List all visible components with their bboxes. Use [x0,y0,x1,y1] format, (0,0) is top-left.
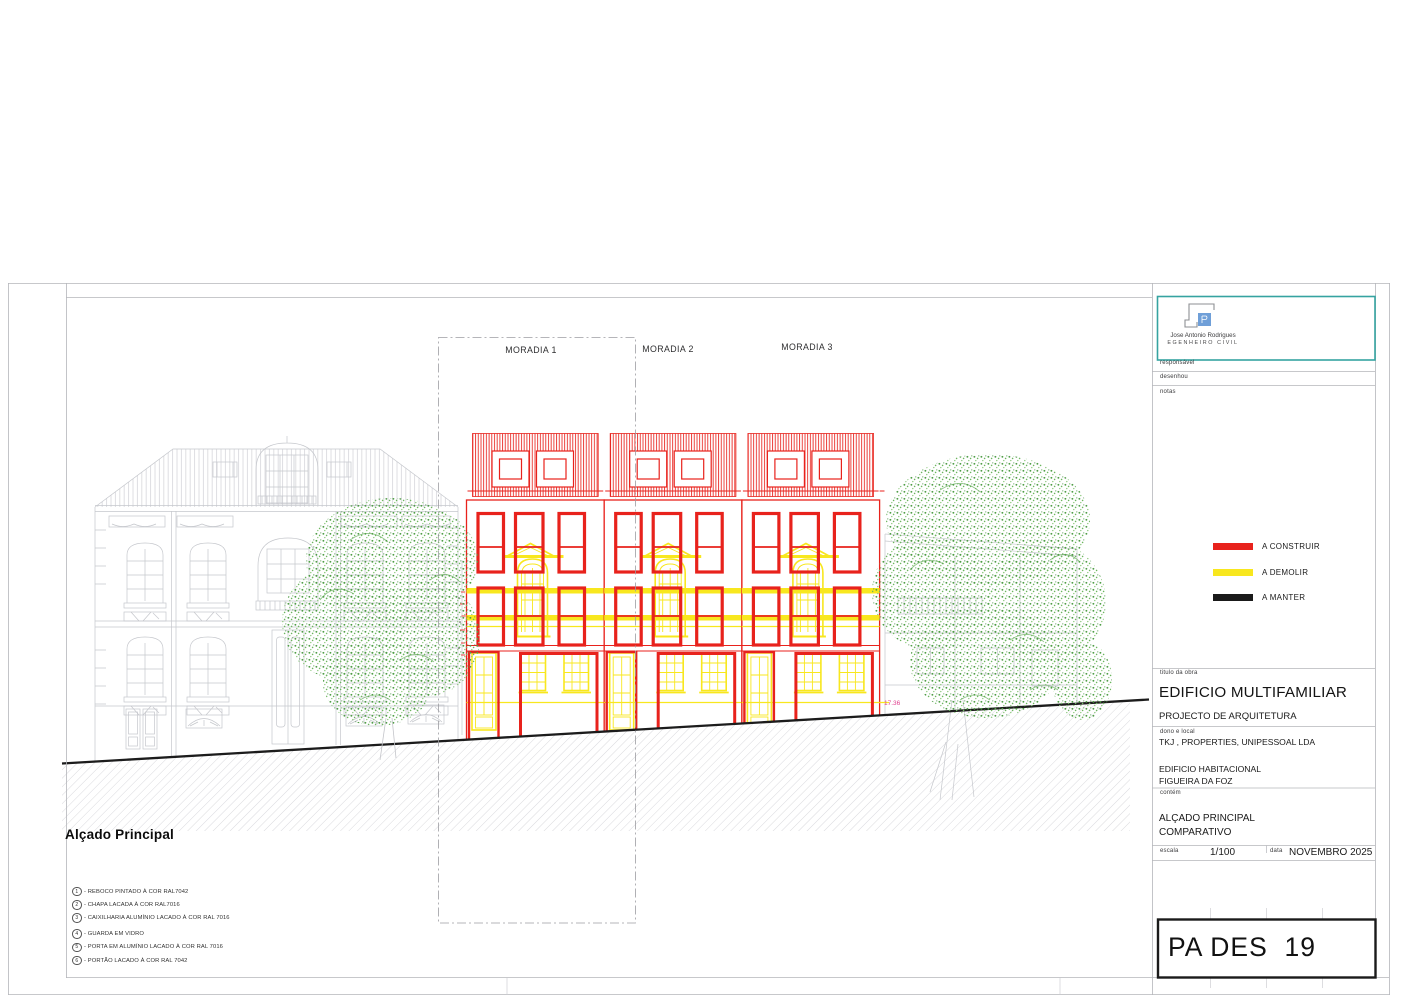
tree-right [872,454,1112,720]
legend-item-construir: A CONSTRUIR [1213,542,1320,551]
elevation-title: Alçado Principal [65,827,174,842]
tree-left [282,498,480,760]
note-number: 4 [72,929,82,939]
new-townhouses [458,434,889,746]
legend-label: A MANTER [1262,593,1305,602]
building-type: EDIFICIO HABITACIONAL [1159,764,1261,774]
note-text: - CAIXILHARIA ALUMÍNIO LACADO À COR RAL … [84,915,230,921]
field-notas: notas [1160,389,1176,395]
townhouse-2 [604,434,742,746]
legend-item-manter: A MANTER [1213,593,1305,602]
field-contem: contém [1160,790,1181,796]
label-moradia-2: MORADIA 2 [603,344,733,354]
legend-swatch-construir [1213,543,1253,550]
field-dono-e-local: dono e local [1160,729,1195,735]
note-text: - PORTA EM ALUMÍNIO LACADO À COR RAL 701… [84,944,223,950]
note-text: - GUARDA EM VIDRO [84,931,144,937]
note-text: - PORTÃO LACADO À COR RAL 7042 [84,958,188,964]
contains-line2: COMPARATIVO [1159,827,1231,838]
note-number: 2 [72,900,82,910]
note-item: 4- GUARDA EM VIDRO [72,928,230,941]
project-title: EDIFICIO MULTIFAMILIAR [1159,684,1347,701]
townhouse-1 [467,434,605,746]
level-annotation: 17.36 [884,700,900,707]
company-logo-box [1158,297,1376,361]
note-text: - CHAPA LACADA À COR RAL7016 [84,902,180,908]
legend-swatch-manter [1213,594,1253,601]
drawing-sheet: MORADIA 1 MORADIA 2 MORADIA 3 17.36 Alça… [0,0,1414,1000]
contains-line1: ALÇADO PRINCIPAL [1159,813,1255,824]
scale-value: 1/100 [1195,847,1250,858]
note-item: 2- CHAPA LACADA À COR RAL7016 [72,898,230,911]
note-number: 3 [72,913,82,923]
owner-name: TKJ , PROPERTIES, UNIPESSOAL LDA [1159,737,1315,747]
project-subtitle: PROJECTO DE ARQUITETURA [1159,711,1297,722]
materials-notes: 1- REBOCO PINTADO À COR RAL7042 2- CHAPA… [72,885,230,967]
note-item: 6- PORTÃO LACADO À COR RAL 7042 [72,954,230,967]
note-item: 5- PORTA EM ALUMÍNIO LACADO À COR RAL 70… [72,941,230,954]
legend-item-demolir: A DEMOLIR [1213,568,1308,577]
townhouse-3 [742,434,880,746]
sheet-code: PA DES 19 [1168,932,1316,963]
field-titulo-da-obra: titulo da obra [1160,670,1198,676]
note-text: - REBOCO PINTADO À COR RAL7042 [84,889,188,895]
field-responsavel: responsável [1160,360,1195,366]
label-moradia-3: MORADIA 3 [742,342,872,352]
legend-label: A CONSTRUIR [1262,542,1320,551]
note-item: 1- REBOCO PINTADO À COR RAL7042 [72,885,230,898]
building-location: FIGUEIRA DA FOZ [1159,776,1233,786]
label-moradia-1: MORADIA 1 [466,345,596,355]
field-data: data [1270,848,1282,854]
company-role: EGENHEIRO CIVIL [1158,340,1248,346]
note-item: 3- CAIXILHARIA ALUMÍNIO LACADO À COR RAL… [72,911,230,924]
company-name: Jose Antonio Rodrigues [1158,332,1248,339]
note-number: 1 [72,887,82,897]
field-escala: escala [1160,848,1179,854]
legend-swatch-demolir [1213,569,1253,576]
titleblock-rules [1152,372,1375,861]
date-value: NOVEMBRO 2025 [1289,847,1372,858]
legend-label: A DEMOLIR [1262,568,1308,577]
note-number: 6 [72,956,82,966]
company-identity: Jose Antonio Rodrigues EGENHEIRO CIVIL [1158,332,1248,346]
note-number: 5 [72,943,82,953]
field-desenhou: desenhou [1160,374,1188,380]
